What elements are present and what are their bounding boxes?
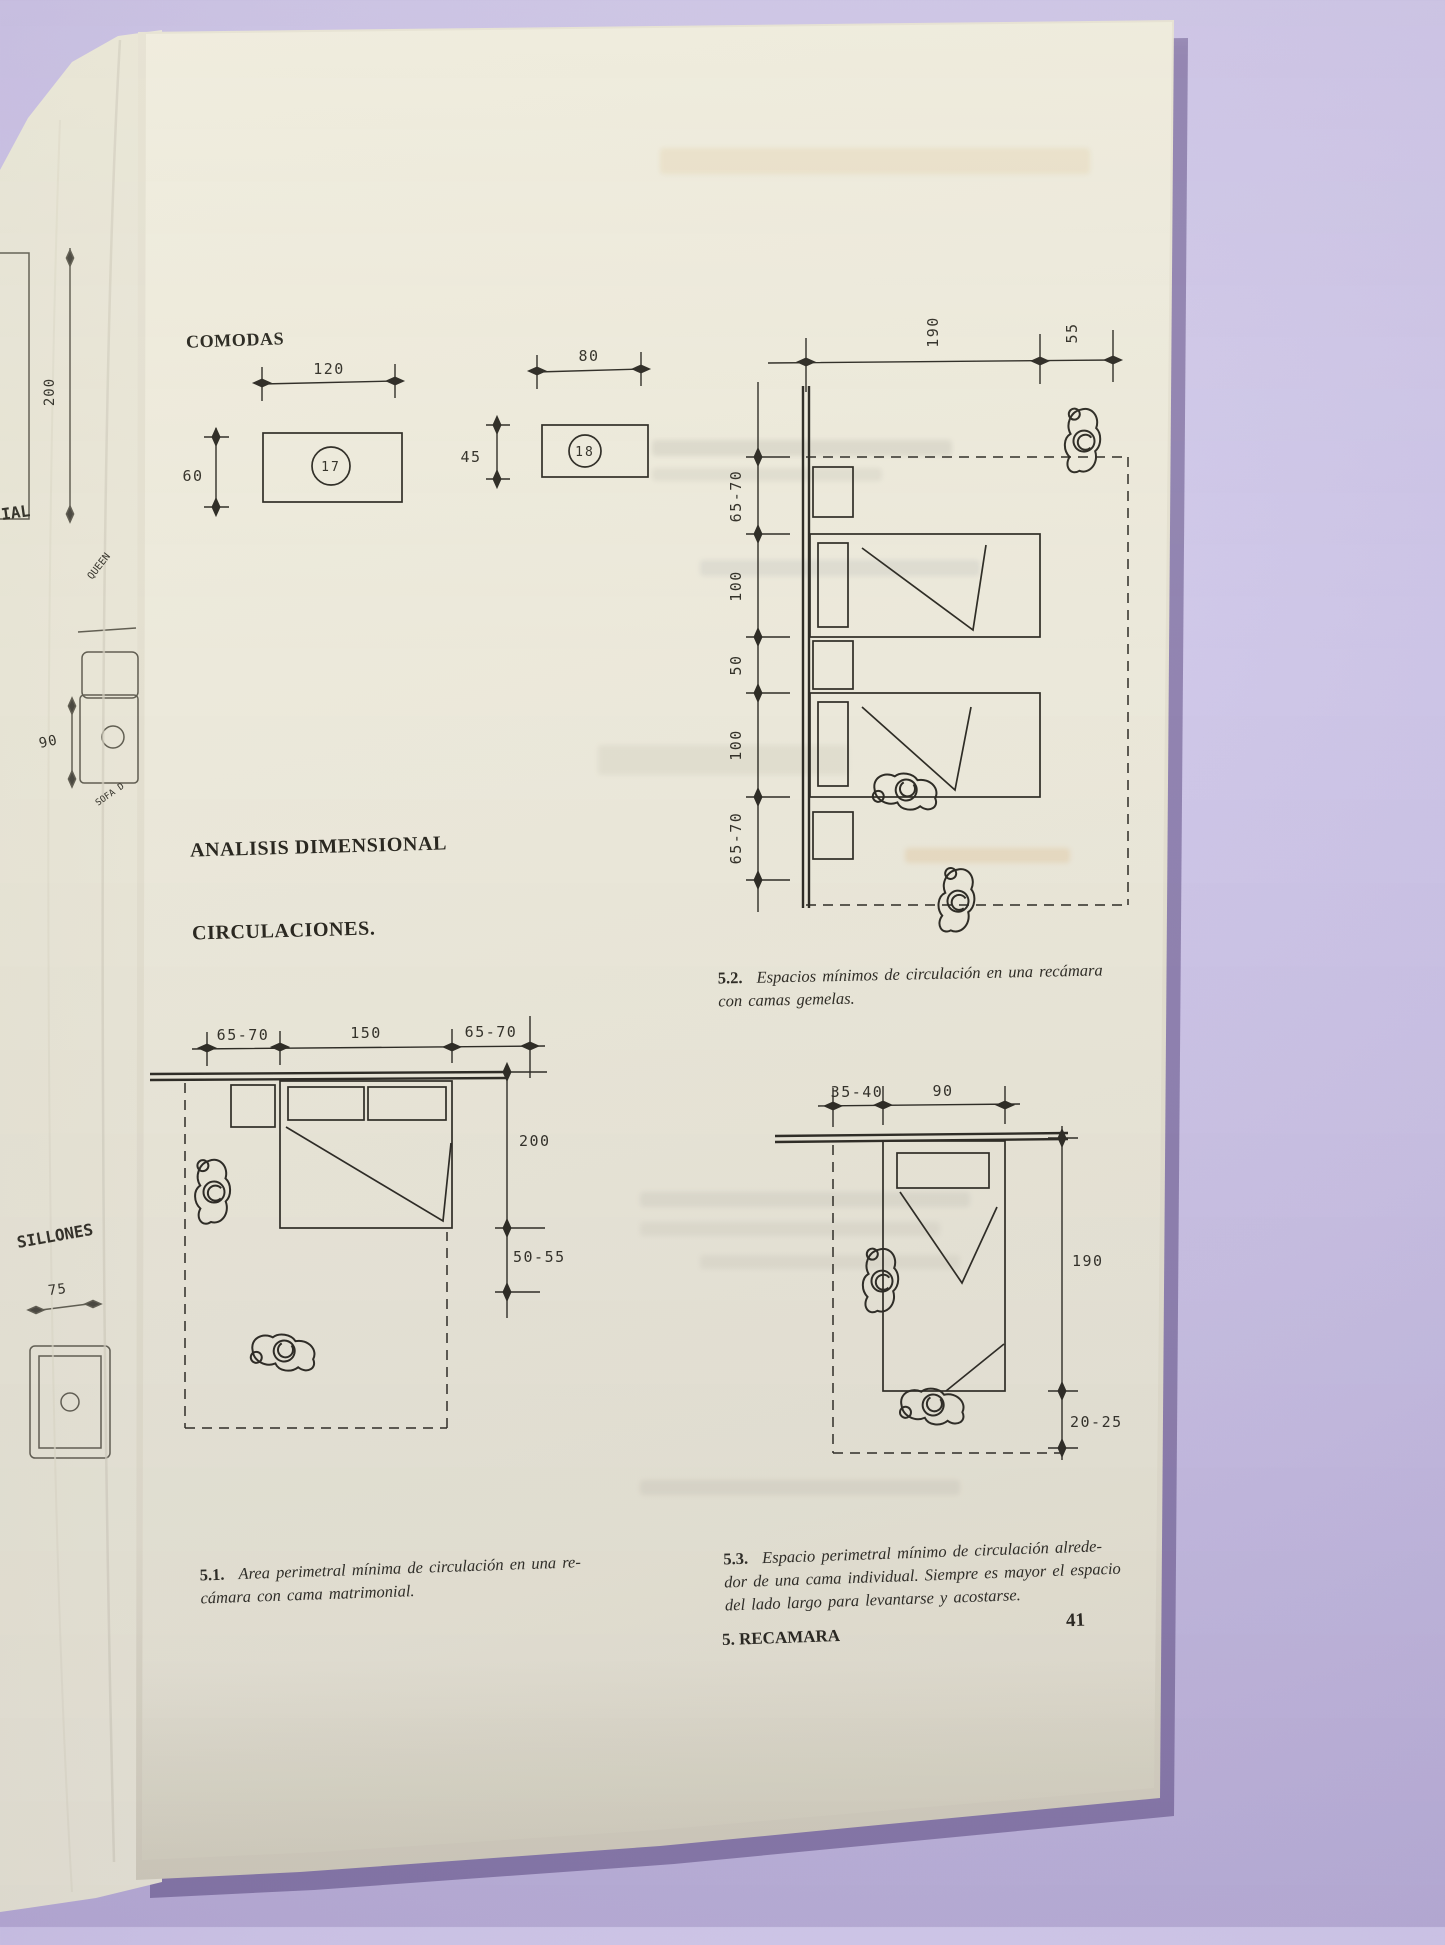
person-top-view xyxy=(1063,407,1103,474)
dresser-17-diagram xyxy=(204,364,403,515)
dresser-17-number: 17 xyxy=(321,460,341,475)
blanket-fold xyxy=(946,1344,1004,1391)
figure-5-1-caption-number: 5.1. xyxy=(199,1565,224,1585)
previous-page-drawing-fragments xyxy=(0,40,138,1892)
dresser-18-outline xyxy=(542,425,648,477)
fig51-dim-center: 150 xyxy=(350,1024,382,1042)
dresser-18-number: 18 xyxy=(575,445,595,460)
fragment-dim-200: 200 xyxy=(42,378,58,406)
pillow xyxy=(288,1087,364,1120)
dresser-17-width-dim: 120 xyxy=(313,360,345,378)
dresser-18-depth-dim: 45 xyxy=(460,448,481,466)
chapter-footer: 5. RECAMARA xyxy=(722,1626,841,1650)
circulation-boundary-dashed xyxy=(806,457,1128,905)
fig52-side-dim-1: 65-70 xyxy=(727,470,745,523)
pillow xyxy=(368,1087,446,1120)
bed-single xyxy=(883,1141,1005,1391)
fig53-dim-width: 90 xyxy=(932,1082,953,1100)
dresser-18-width-dim: 80 xyxy=(578,347,599,365)
fragment-armchair-seat xyxy=(39,1356,101,1448)
nightstand xyxy=(813,641,853,689)
fig51-dim-foot: 50-55 xyxy=(513,1248,566,1266)
fig51-dim-right: 65-70 xyxy=(465,1023,518,1041)
fig53-dim-length: 190 xyxy=(1072,1252,1104,1270)
figure-5-3-drawing xyxy=(775,1086,1078,1460)
dresser-17-depth-dim: 60 xyxy=(182,467,203,485)
person-top-view xyxy=(194,1159,231,1224)
fragment-armchair-plan xyxy=(30,1346,110,1458)
fragment-dim-90: 90 xyxy=(38,732,60,752)
heading-comodas: COMODAS xyxy=(186,328,285,352)
nightstand xyxy=(813,467,853,517)
fragment-label-queen: QUEEN xyxy=(86,551,113,581)
photo-of-open-book: { "book": { "page_number": "41", "sectio… xyxy=(0,0,1445,1927)
fragment-sofa-plan xyxy=(80,695,138,783)
fragment-number-circle xyxy=(61,1393,79,1411)
fragment-label-sillones: SILLONES xyxy=(15,1220,94,1252)
previous-page-fragment-labels: 200 IAL QUEEN 90 SOFA D SILLONES 75 xyxy=(0,378,126,1299)
wall-line xyxy=(150,1072,508,1080)
fragment-sofa-arm xyxy=(82,652,138,698)
nightstand xyxy=(813,812,853,859)
page-crease xyxy=(103,40,120,1862)
fig52-side-dim-2: 100 xyxy=(727,570,745,602)
pillow xyxy=(818,702,848,786)
fig51-dim-length: 200 xyxy=(519,1132,551,1150)
fragment-label-sofa: SOFA D xyxy=(94,782,126,809)
fragment-dim-75: 75 xyxy=(47,1281,68,1299)
person-top-view xyxy=(861,1247,901,1314)
figure-5-2-drawing xyxy=(746,330,1128,935)
person-top-view xyxy=(934,866,979,935)
fig51-dim-left: 65-70 xyxy=(217,1026,270,1044)
figure-5-1-drawing xyxy=(150,1016,547,1428)
figure-5-2-caption: 5.2.Espacios mínimos de circulación en u… xyxy=(718,958,1149,1013)
bed-twin-1 xyxy=(810,534,1040,637)
fig52-dim-length: 190 xyxy=(924,316,942,348)
nightstand xyxy=(231,1085,275,1127)
blanket-fold xyxy=(862,545,986,630)
blanket-fold xyxy=(286,1127,451,1221)
fig52-side-dim-5: 65-70 xyxy=(727,812,745,865)
person-top-view xyxy=(871,768,941,815)
figure-5-2-caption-number: 5.2. xyxy=(718,968,743,988)
circulation-boundary-dashed xyxy=(185,1083,447,1428)
dresser-18-diagram xyxy=(486,352,649,487)
pillow xyxy=(818,543,848,627)
bed-twin-2 xyxy=(810,693,1040,797)
fragment-number-circle xyxy=(102,726,124,748)
pillow xyxy=(897,1153,989,1188)
fig53-dim-foot: 20-25 xyxy=(1070,1413,1123,1431)
fig52-side-dim-3: 50 xyxy=(727,654,745,675)
fig52-dim-foot: 55 xyxy=(1063,322,1081,343)
person-top-view xyxy=(249,1329,319,1376)
fig52-side-dim-4: 100 xyxy=(727,729,745,761)
fragment-label-ial: IAL xyxy=(0,501,31,524)
fig53-dim-side: 35-40 xyxy=(831,1083,884,1101)
bed-matrimonial xyxy=(280,1081,452,1228)
fragment-rectangle xyxy=(0,253,29,519)
figure-5-3-caption-number: 5.3. xyxy=(723,1549,748,1569)
blanket-fold xyxy=(900,1192,997,1283)
wall-line xyxy=(803,386,809,908)
page-number: 41 xyxy=(1066,1610,1086,1633)
